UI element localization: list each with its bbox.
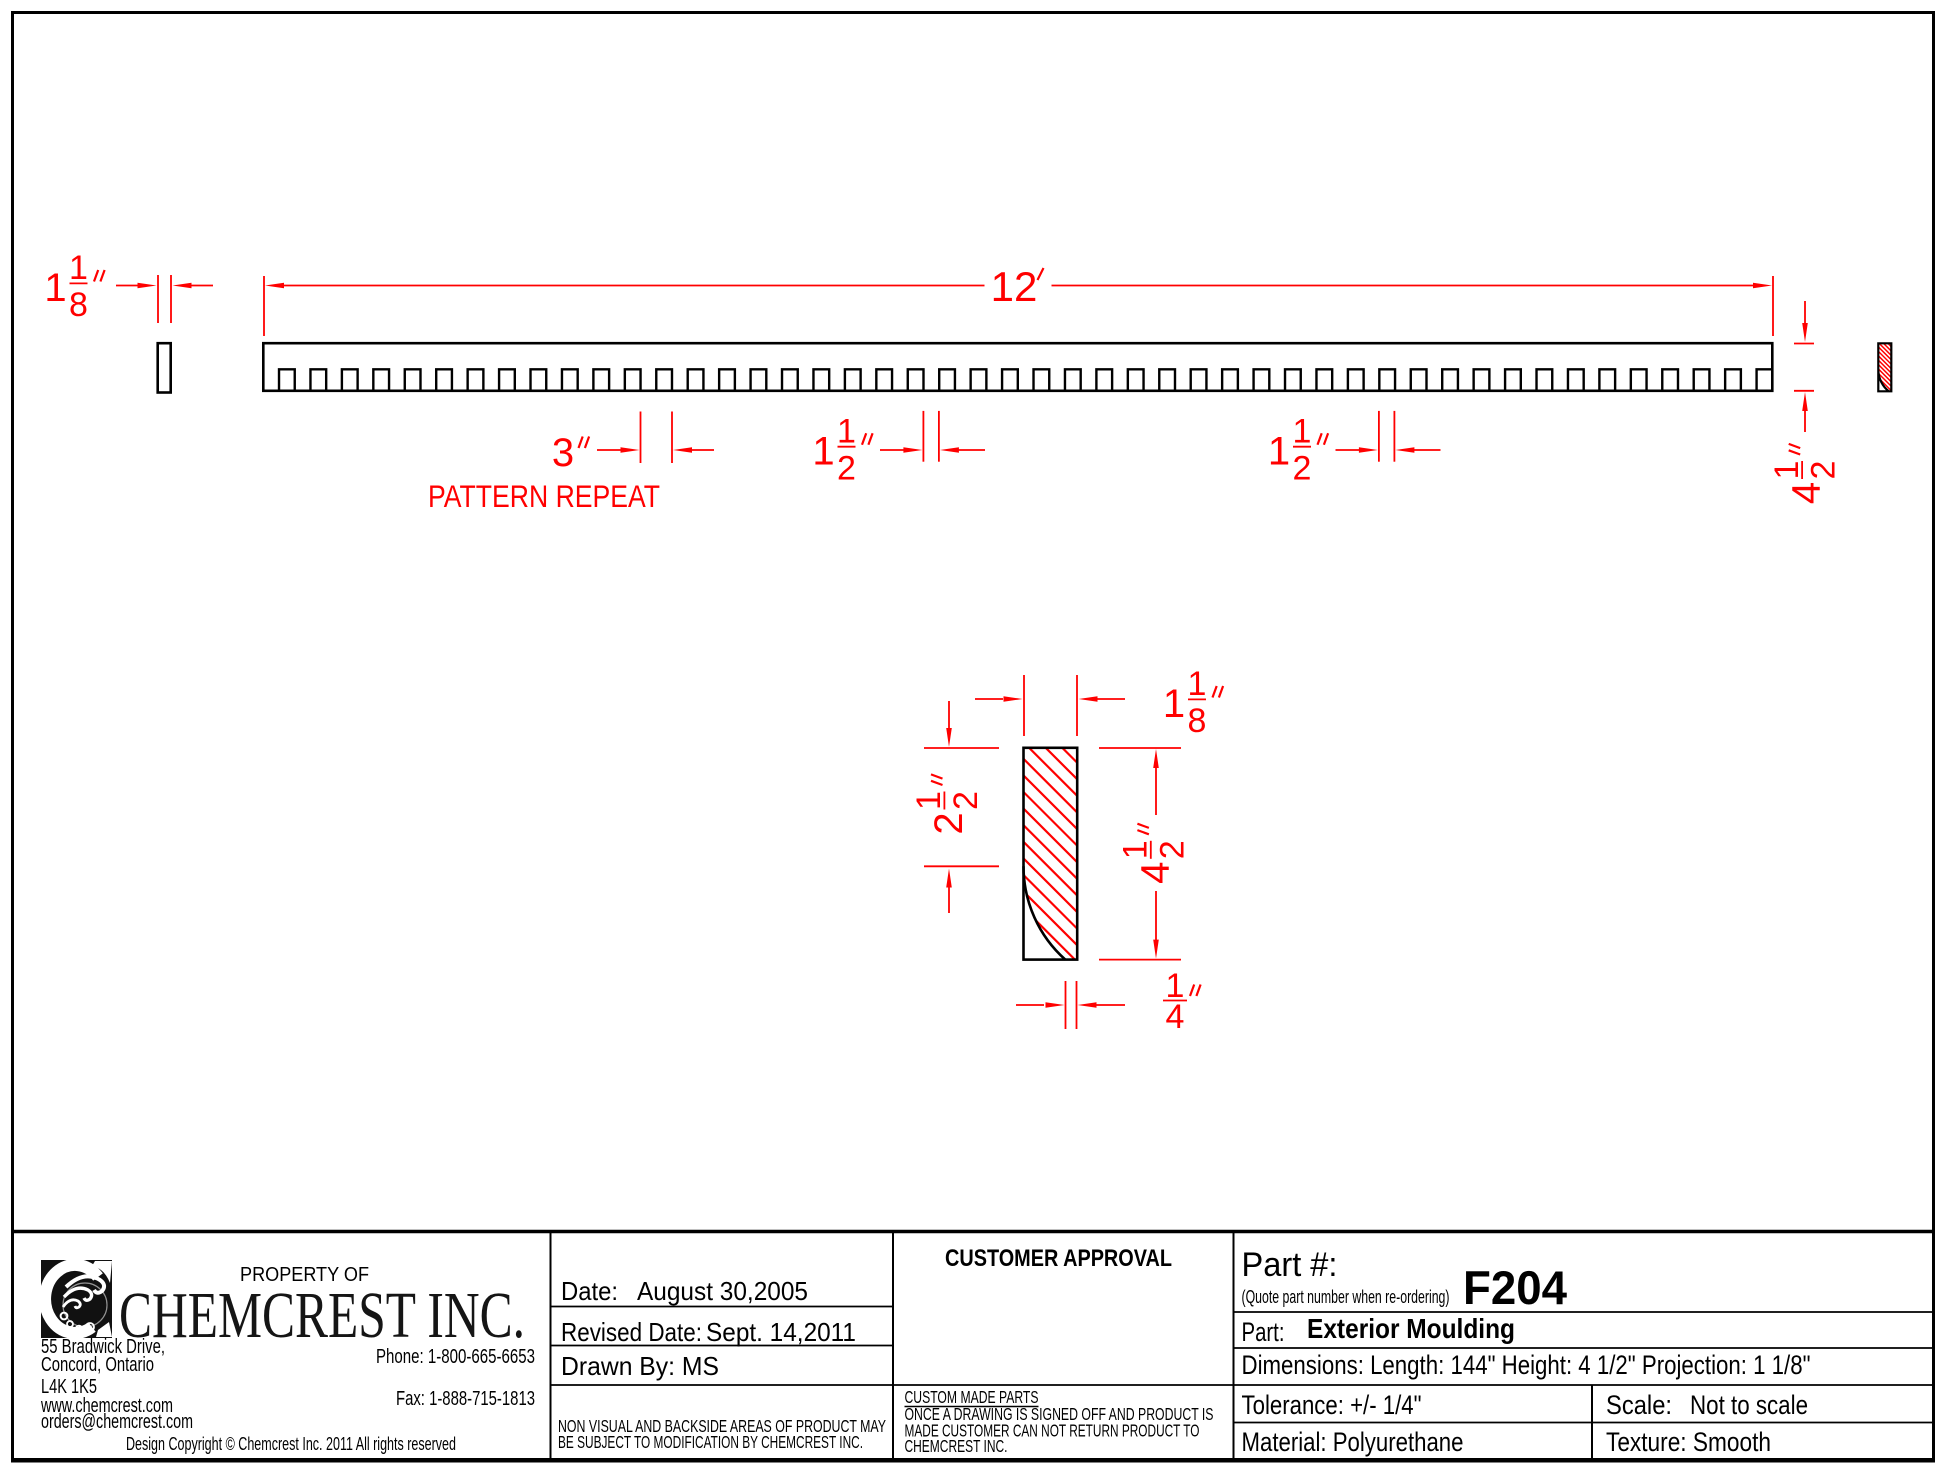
svg-text:Sept. 14,2011: Sept. 14,2011 <box>706 1317 856 1347</box>
svg-text:PATTERN REPEAT: PATTERN REPEAT <box>428 478 660 514</box>
svg-text:Material: Polyurethane: Material: Polyurethane <box>1242 1427 1464 1457</box>
svg-text:12: 12 <box>991 263 1038 310</box>
svg-text:1: 1 <box>1163 682 1185 726</box>
svg-text:2: 2 <box>1153 840 1191 859</box>
svg-text:Tolerance: +/- 1/4": Tolerance: +/- 1/4" <box>1242 1390 1422 1420</box>
svg-text:orders@chemcrest.com: orders@chemcrest.com <box>41 1411 193 1433</box>
svg-text:4: 4 <box>1166 998 1185 1036</box>
svg-text:(Quote part number when re-ord: (Quote part number when re-ordering) <box>1242 1286 1450 1307</box>
svg-text:Phone: 1-800-665-6653: Phone: 1-800-665-6653 <box>376 1346 535 1368</box>
svg-text:Not to scale: Not to scale <box>1690 1390 1808 1420</box>
svg-text:1: 1 <box>69 249 88 287</box>
svg-text:CUSTOMER APPROVAL: CUSTOMER APPROVAL <box>945 1245 1172 1272</box>
svg-text:4: 4 <box>1785 482 1829 504</box>
svg-text:1: 1 <box>1768 461 1806 480</box>
svg-text:Revised Date:: Revised Date: <box>561 1317 702 1347</box>
svg-text:Fax: 1-888-715-1813: Fax: 1-888-715-1813 <box>396 1388 535 1410</box>
svg-text:1: 1 <box>1268 429 1290 473</box>
svg-text:August 30,2005: August 30,2005 <box>637 1276 808 1306</box>
svg-text:Drawn By: MS: Drawn By: MS <box>561 1351 719 1381</box>
svg-text:CHEMCREST INC.: CHEMCREST INC. <box>119 1279 525 1352</box>
svg-text:Design Copyright © Chemcrest I: Design Copyright © Chemcrest Inc. 2011 A… <box>126 1433 456 1454</box>
svg-text:Date:: Date: <box>561 1276 618 1306</box>
svg-text:Exterior Moulding: Exterior Moulding <box>1307 1313 1515 1344</box>
svg-text:1: 1 <box>1188 665 1207 703</box>
svg-text:8: 8 <box>1188 702 1207 740</box>
svg-text:8: 8 <box>69 286 88 324</box>
svg-text:2: 2 <box>947 791 985 810</box>
svg-text:1: 1 <box>1293 412 1312 450</box>
svg-text:BE SUBJECT TO MODIFICATION BY: BE SUBJECT TO MODIFICATION BY CHEMCREST … <box>558 1432 863 1452</box>
svg-text:2: 2 <box>837 449 856 487</box>
svg-text:4: 4 <box>1133 862 1177 884</box>
svg-text:1: 1 <box>837 412 856 450</box>
svg-text:2: 2 <box>1805 461 1843 480</box>
svg-text:Scale:: Scale: <box>1606 1390 1672 1420</box>
svg-text:Concord, Ontario: Concord, Ontario <box>41 1354 154 1376</box>
svg-text:Part:: Part: <box>1242 1317 1285 1347</box>
svg-text:2: 2 <box>927 812 971 834</box>
svg-text:Texture: Smooth: Texture: Smooth <box>1606 1427 1771 1457</box>
svg-text:3: 3 <box>552 431 574 475</box>
svg-text:1: 1 <box>910 791 948 810</box>
svg-text:F204: F204 <box>1463 1261 1567 1314</box>
svg-text:2: 2 <box>1293 449 1312 487</box>
svg-text:1: 1 <box>812 429 834 473</box>
svg-text:1: 1 <box>44 266 66 310</box>
svg-text:Dimensions: Length: 144" Heigh: Dimensions: Length: 144" Height: 4 1/2" … <box>1242 1350 1811 1380</box>
svg-text:CHEMCREST INC.: CHEMCREST INC. <box>905 1436 1008 1456</box>
svg-text:1: 1 <box>1117 840 1155 859</box>
svg-text:Part #:: Part #: <box>1242 1246 1338 1284</box>
